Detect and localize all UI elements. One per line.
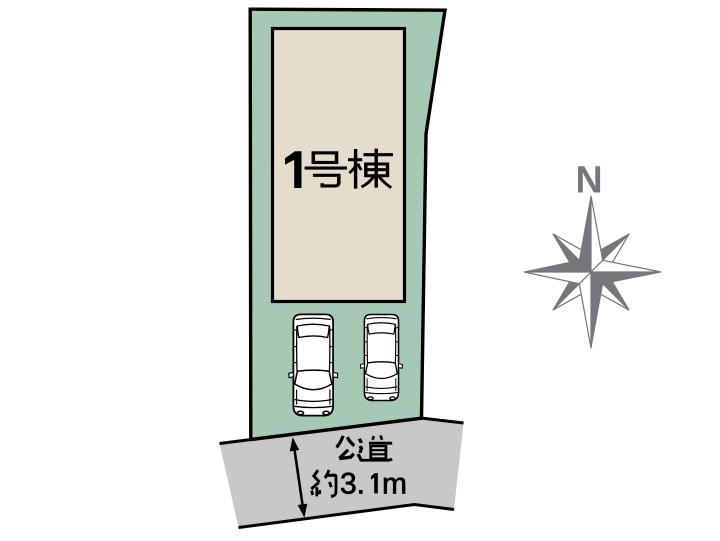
svg-text:3.: 3. [340, 468, 365, 501]
svg-text:m: m [382, 468, 407, 501]
svg-text:N: N [576, 159, 603, 201]
